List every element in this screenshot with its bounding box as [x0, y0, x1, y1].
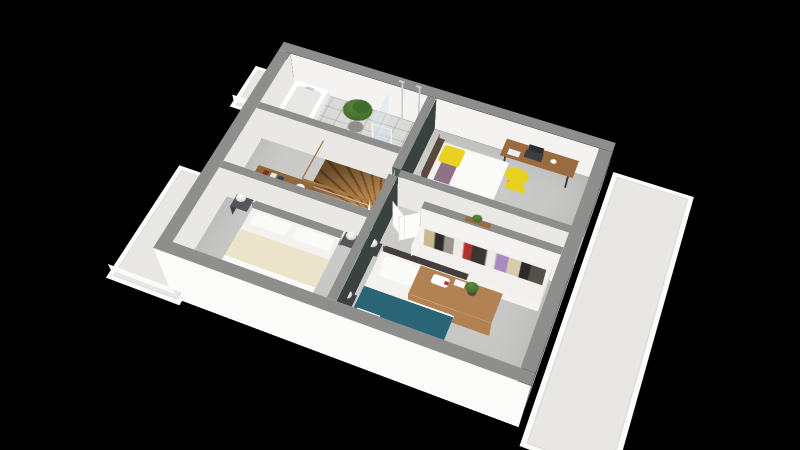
floor-plan-render [0, 0, 800, 450]
floor-plan-scene [164, 73, 606, 408]
